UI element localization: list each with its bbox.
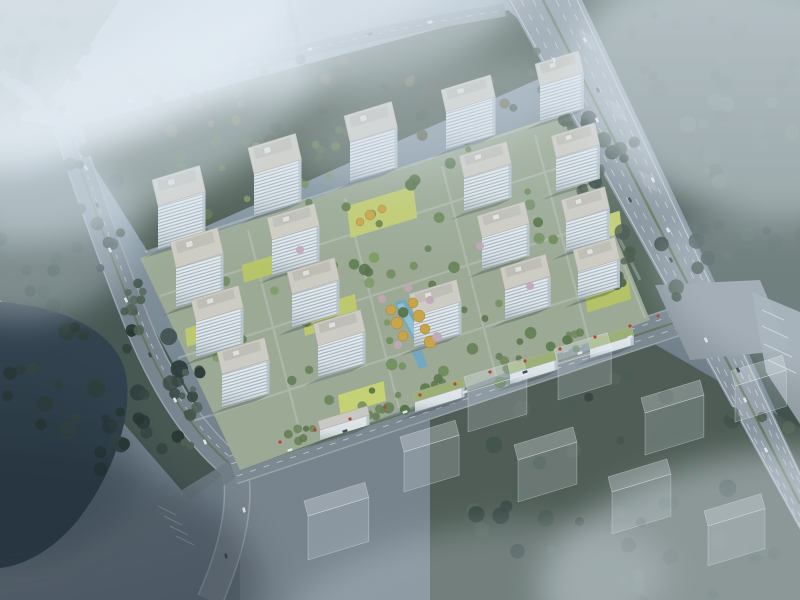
aerial-rendering [0,0,800,600]
top-haze-overlay [0,0,800,600]
scene-canvas [0,0,800,600]
